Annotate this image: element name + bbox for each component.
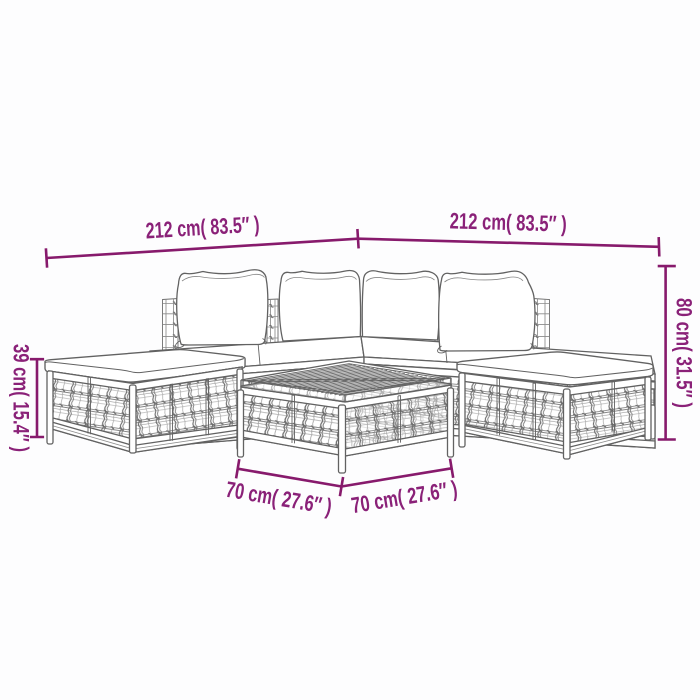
svg-text:80 cm( 31.5″ ): 80 cm( 31.5″ ) <box>672 298 697 408</box>
svg-text:39 cm( 15.4″ ): 39 cm( 15.4″ ) <box>9 344 34 452</box>
svg-text:212 cm( 83.5″ ): 212 cm( 83.5″ ) <box>449 208 567 236</box>
